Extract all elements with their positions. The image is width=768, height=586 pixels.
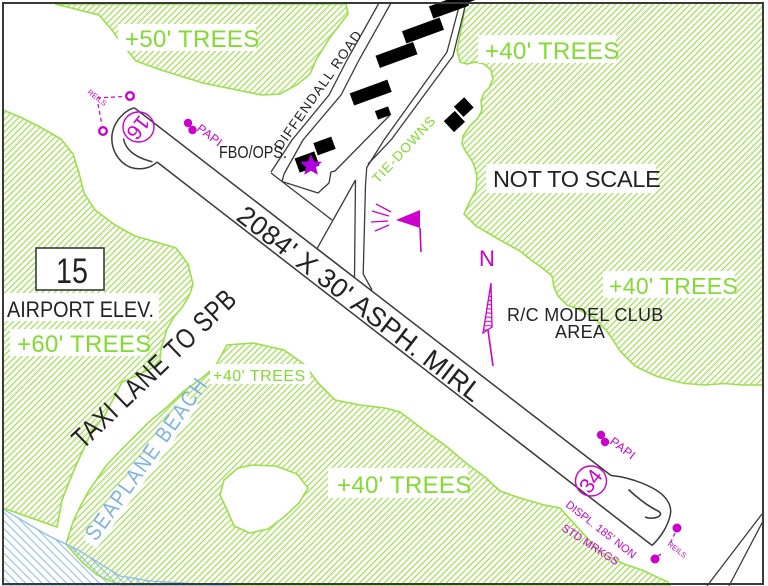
svg-text:15: 15 — [56, 251, 88, 290]
svg-text:+50' TREES: +50' TREES — [125, 26, 260, 53]
svg-text:NOT TO SCALE: NOT TO SCALE — [493, 166, 661, 192]
svg-text:N: N — [479, 246, 495, 271]
svg-text:AREA: AREA — [555, 322, 605, 342]
svg-text:+40' TREES: +40' TREES — [213, 368, 306, 385]
svg-text:AIRPORT ELEV.: AIRPORT ELEV. — [7, 298, 154, 322]
svg-text:+40' TREES: +40' TREES — [609, 273, 738, 299]
svg-text:+40' TREES: +40' TREES — [485, 38, 620, 65]
svg-text:+40' TREES: +40' TREES — [337, 472, 472, 499]
svg-text:+60' TREES: +60' TREES — [17, 331, 152, 358]
svg-text:FBO/OPS.: FBO/OPS. — [219, 143, 287, 163]
